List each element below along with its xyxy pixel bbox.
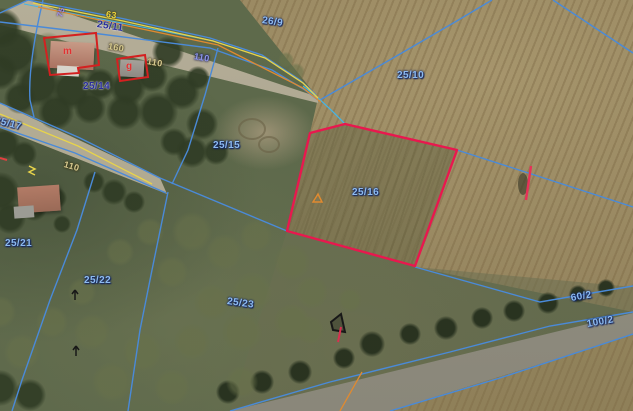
- parcel-label-25-10: 25/10: [397, 71, 424, 81]
- boundary-line: [320, 0, 492, 100]
- boundary-line: [0, 103, 287, 231]
- boundary-line: [457, 150, 633, 207]
- parcel-label-25-16: 25/16: [352, 188, 379, 198]
- yellow-point-symbol: [29, 166, 35, 175]
- building-label-m: m: [63, 47, 72, 57]
- arrow-symbol: [72, 290, 78, 300]
- building-label-g: g: [126, 62, 133, 72]
- parcel-label-25-15: 25/15: [213, 141, 240, 151]
- boundary-line: [0, 127, 166, 193]
- boundary-line: [390, 334, 633, 411]
- boundary-line: [415, 267, 633, 302]
- map-canvas[interactable]: 75 63 25/11 160 110 110 25/14 26/9 25/10…: [0, 0, 633, 411]
- boundary-line: [0, 0, 28, 13]
- point-label-63: 63: [105, 10, 117, 20]
- cadastral-lines-layer: [0, 0, 633, 411]
- red-tick-mark: [0, 158, 7, 160]
- utility-line: [0, 114, 152, 184]
- boundary-line: [128, 192, 168, 411]
- survey-marker-orange: [313, 194, 322, 202]
- boundary-line: [30, 0, 43, 117]
- parcel-boundaries: [0, 0, 633, 411]
- boundary-line: [230, 312, 633, 411]
- map-symbols: [72, 290, 345, 356]
- road-curve-line: [303, 86, 345, 124]
- parcel-label-25-21: 25/21: [5, 239, 32, 249]
- boundary-line: [553, 0, 633, 53]
- building-outlines: [44, 33, 148, 81]
- boundary-line: [172, 48, 218, 184]
- parcel-label-25-14: 25/14: [83, 82, 110, 92]
- arrow-symbol: [73, 346, 79, 356]
- utility-line: [340, 372, 362, 411]
- parcel-label-25-22: 25/22: [84, 276, 111, 286]
- cyan-lines: [24, 4, 345, 124]
- pylon-symbol: [331, 314, 345, 332]
- boundary-line: [12, 172, 95, 411]
